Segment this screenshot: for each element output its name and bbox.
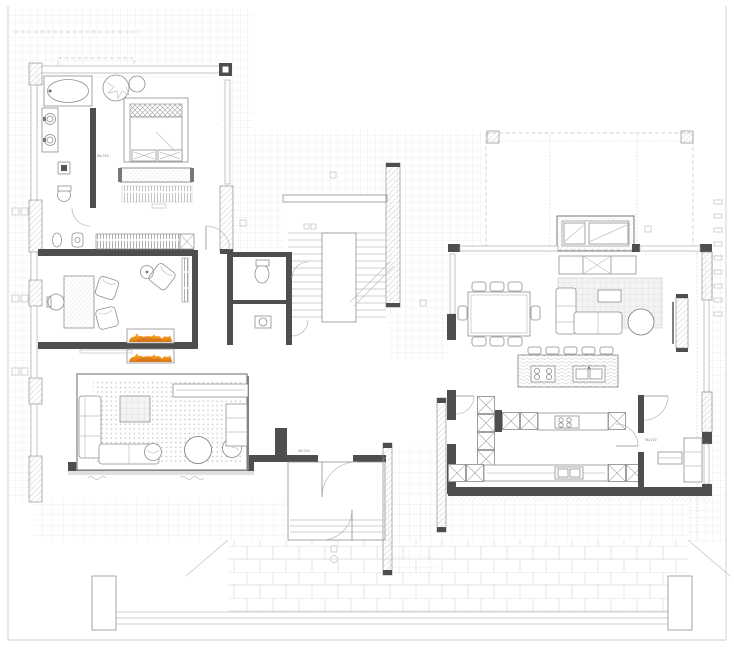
tile-strip-left [8,130,33,502]
dining-chair [531,306,540,320]
toilet [255,265,269,283]
tv-console [173,384,248,397]
floor-plan-canvas: 90/210 90/210 80/210 [0,0,734,647]
dining-chair [490,282,504,291]
bar-stool [600,347,613,354]
dining-table [468,292,530,336]
kitchen-island [518,347,618,387]
window-west-2 [31,252,37,280]
door-tag: 80/210 [97,154,109,158]
bar-stool [582,347,595,354]
wardrobe-band [96,234,180,249]
dining-chair [472,337,486,346]
window-east-family [704,300,709,392]
side-cabinet [226,404,247,446]
window-north-bedroom [42,66,220,73]
bed-headboard-lattice [130,104,182,117]
hob [531,366,555,382]
curtain-squiggle [88,477,204,480]
bookshelf [182,258,188,302]
window-west-4 [31,404,37,456]
window-west-3 [31,306,37,378]
window-north-dining [460,246,558,251]
entry-fin-wall-left [383,443,392,575]
armchair [95,306,119,330]
plaid-ottoman [120,396,150,422]
family-sofa-back [556,288,576,334]
window-west-1 [31,85,37,200]
window-east-bedroom [225,80,230,184]
dining-area [458,282,540,346]
pergola-post-left [487,131,499,143]
pouf [145,444,162,461]
dining-chair [490,337,504,346]
entry-court-pavers [228,540,688,612]
bar-stool [528,347,541,354]
coffee-table [598,290,621,302]
planter-right [668,576,692,630]
bed-bench [120,168,192,182]
entry-closet [684,438,702,482]
desk [64,276,94,328]
toilet-2 [53,233,62,247]
outdoor-fireplace [557,216,636,274]
bedroom-rug [122,186,192,202]
stair-core [322,233,356,322]
bar-stool [546,347,559,354]
entry-steps [92,612,688,624]
living-room [77,374,248,480]
pergola-post-right [681,131,693,143]
dining-chair [472,282,486,291]
door-tag: 90/210 [298,449,310,453]
window-north-family [640,246,700,251]
dining-chair [508,282,522,291]
family-area [556,278,662,335]
door-tag: 90/210 [645,438,657,442]
dining-chair [508,337,522,346]
tv-pier [676,298,688,348]
front-terrace-band-left [33,500,286,540]
planter-left [92,576,116,630]
sofa-west [79,396,101,458]
bar-stool [564,347,577,354]
entry-fin-wall-right [437,398,446,532]
bidet [72,233,83,247]
dining-chair [458,306,467,320]
